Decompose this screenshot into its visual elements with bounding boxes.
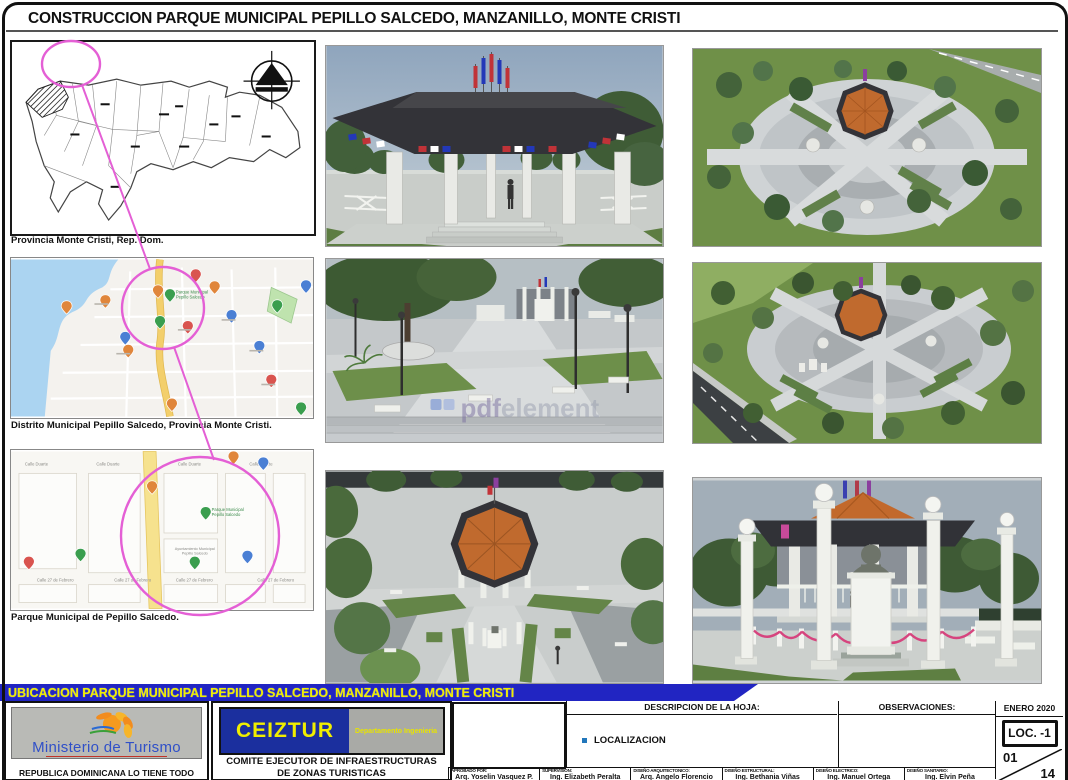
svg-text:Calle 27 de Febrero: Calle 27 de Febrero (176, 578, 213, 583)
render-aerial-angle (692, 262, 1042, 444)
signature-role: SUPERVISION: (542, 768, 572, 773)
stamp-box (452, 702, 566, 769)
page-total: 14 (1041, 766, 1055, 780)
location-banner: UBICACION PARQUE MUNICIPAL PEPILLO SALCE… (0, 684, 758, 701)
signature-role: DISEÑO ESTRUCTURAL: (725, 768, 775, 773)
signature-cell: DISEÑO ARQUITECTONICO: Arq. Angelo Flore… (630, 768, 721, 780)
ceiztur-cell: CEIZTUR Departamento Ingenieria COMITE E… (211, 701, 452, 780)
descripcion-header: DESCRIPCION DE LA HOJA: (566, 701, 837, 715)
svg-text:Ayuntamiento Municipal: Ayuntamiento Municipal (175, 547, 215, 551)
committee-line1: COMITE EJECUTOR DE INFRAESTRUCTURAS (213, 756, 450, 767)
map-district-panel: Parque Municipal Pepillo Salcedo (10, 257, 314, 419)
ceiztur-dept: Departamento Ingenieria (349, 709, 443, 753)
divider (566, 714, 567, 767)
bullet-icon (582, 738, 587, 743)
signature-cell: DISEÑO SANITARIO: Ing. Elvin Peña (904, 768, 995, 780)
location-banner-text: UBICACION PARQUE MUNICIPAL PEPILLO SALCE… (0, 686, 514, 700)
gazebo-steps (427, 222, 563, 243)
park-pin-label: Parque Municipal Pepillo Salcedo (176, 289, 208, 299)
map-district-caption: Distrito Municipal Pepillo Salcedo, Prov… (11, 420, 272, 431)
date-sheet-cell: ENERO 2020 LOC. -1 01 14 (995, 701, 1063, 779)
signature-role: DISEÑO SANITARIO: (907, 768, 948, 773)
svg-text:Calle 27 de Febrero: Calle 27 de Febrero (37, 578, 74, 583)
sheet-date: ENERO 2020 (996, 701, 1063, 717)
signature-name: Ing. Manuel Ortega (814, 774, 904, 780)
map-province-caption: Provincia Monte Cristi, Rep. Dom. (11, 235, 164, 246)
signature-role: DISEÑO ELECTRICO: (816, 768, 859, 773)
map-park-caption: Parque Municipal de Pepillo Salcedo. (11, 612, 179, 623)
committee-line2: DE ZONAS TURISTICAS (213, 768, 450, 779)
svg-text:Pepillo Salcedo: Pepillo Salcedo (212, 512, 241, 517)
ministerio-cell: Ministerio de Turismo REPUBLICA DOMINICA… (4, 701, 209, 780)
observaciones-header: OBSERVACIONES: (838, 701, 995, 715)
signature-name: Arq. Angelo Florencio (631, 774, 721, 780)
ministerio-logo-box: Ministerio de Turismo (11, 707, 202, 759)
render-gazebo-front (325, 45, 664, 247)
signature-cell: APROBADO POR: Arq. Yoselin Vasquez P. (448, 768, 539, 780)
svg-text:pdfelement: pdfelement (461, 393, 600, 423)
mitur-sun-logo-icon (81, 709, 147, 739)
ceiztur-logo-box: CEIZTUR Departamento Ingenieria (219, 707, 445, 755)
svg-text:Calle Duarte: Calle Duarte (25, 461, 49, 466)
page-number: 01 (1003, 750, 1017, 765)
sheet-description-text: LOCALIZACION (594, 735, 666, 746)
ceiztur-acronym: CEIZTUR (221, 709, 349, 753)
page-cell: 01 14 (996, 749, 1063, 780)
divider (838, 714, 839, 767)
signature-name: Ing. Bethania Viñas (723, 774, 813, 780)
signature-role: DISEÑO ARQUITECTONICO: (633, 768, 689, 773)
street-map: Calle Duarte Calle Duarte Calle Duarte C… (11, 450, 313, 610)
svg-text:Pepillo Salcedo: Pepillo Salcedo (176, 294, 205, 299)
title-bar: CONSTRUCCION PARQUE MUNICIPAL PEPILLO SA… (6, 7, 1058, 32)
ministerio-name: Ministerio de Turismo (12, 739, 201, 756)
svg-text:Pepillo Salcedo: Pepillo Salcedo (182, 551, 208, 555)
signature-role: APROBADO POR: (451, 768, 487, 773)
svg-text:Calle Duarte: Calle Duarte (178, 461, 202, 466)
map-province-panel (10, 40, 316, 236)
district-map: Parque Municipal Pepillo Salcedo (11, 258, 313, 418)
sheet-description: LOCALIZACION (582, 735, 666, 746)
render-monument-closeup (692, 477, 1042, 684)
sheet-code: LOC. -1 (1002, 720, 1058, 747)
signature-row: APROBADO POR: Arq. Yoselin Vasquez P. SU… (448, 767, 995, 780)
svg-text:Calle Duarte: Calle Duarte (96, 461, 120, 466)
signature-name: Ing. Elvin Peña (905, 774, 995, 780)
render-plaza-lamps: pdfelement (325, 258, 664, 443)
signature-name: Arq. Yoselin Vasquez P. (449, 774, 539, 780)
province-map (12, 42, 314, 234)
render-aerial-gazebo-close (325, 470, 664, 684)
svg-text:Calle 27 de Febrero: Calle 27 de Febrero (114, 578, 151, 583)
watermark-icon (431, 399, 442, 410)
sheet-title: CONSTRUCCION PARQUE MUNICIPAL PEPILLO SA… (28, 10, 680, 28)
signature-name: Ing. Elizabeth Peralta (540, 774, 630, 780)
svg-text:Calle 27 de Febrero: Calle 27 de Febrero (257, 578, 294, 583)
signature-cell: DISEÑO ESTRUCTURAL: Ing. Bethania Viñas (722, 768, 813, 780)
signature-cell: DISEÑO ELECTRICO: Ing. Manuel Ortega (813, 768, 904, 780)
drawing-sheet: CONSTRUCCION PARQUE MUNICIPAL PEPILLO SA… (0, 0, 1068, 780)
park-pin-label: Parque Municipal Pepillo Salcedo (212, 507, 244, 517)
watermark-icon (444, 399, 455, 410)
signature-cell: SUPERVISION: Ing. Elizabeth Peralta (539, 768, 630, 780)
render-aerial-park (692, 48, 1042, 247)
map-street-panel: Calle Duarte Calle Duarte Calle Duarte C… (10, 449, 314, 611)
logo-underline (46, 756, 167, 758)
ministerio-slogan: REPUBLICA DOMINICANA LO TIENE TODO (6, 768, 207, 778)
